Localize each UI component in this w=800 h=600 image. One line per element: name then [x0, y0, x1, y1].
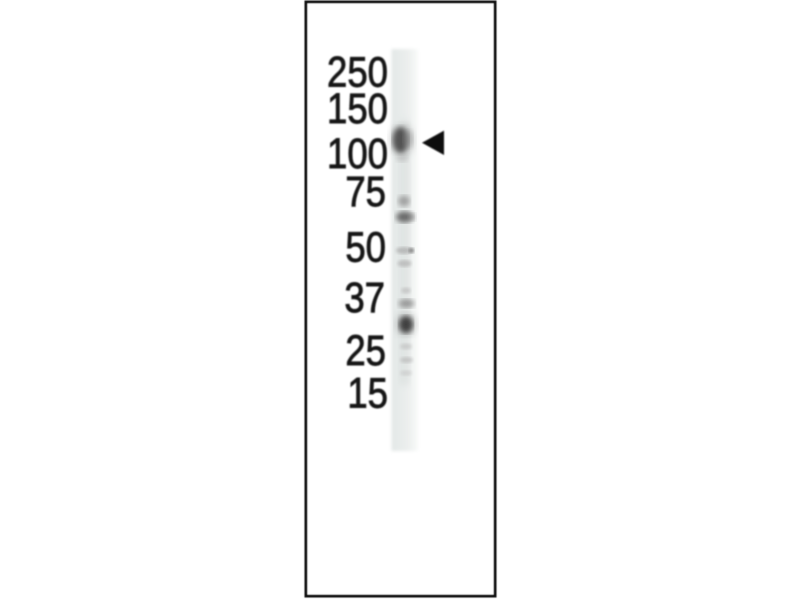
svg-text:75: 75: [345, 168, 386, 215]
svg-text:50: 50: [345, 224, 386, 271]
svg-text:15: 15: [347, 370, 388, 417]
svg-text:25: 25: [345, 327, 386, 374]
svg-text:150: 150: [327, 85, 388, 132]
svg-text:37: 37: [344, 274, 385, 321]
